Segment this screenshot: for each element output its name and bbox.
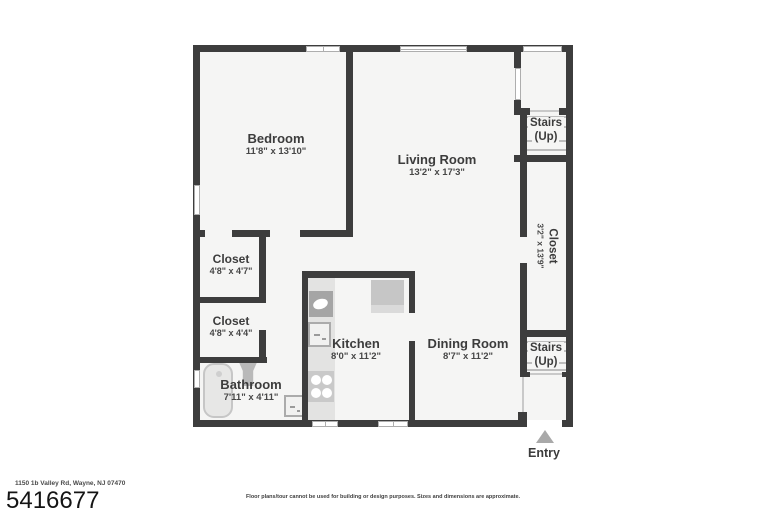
wall-right-column-lower [520, 263, 527, 372]
room-name: Closet [210, 314, 253, 328]
floor-plan: Bedroom 11'8" x 13'10" Living Room 13'2"… [0, 0, 768, 512]
room-name: Stairs [528, 342, 564, 356]
window-bedroom-top [306, 46, 340, 52]
room-label-closet-right: Closet 3'2" x 13'9" [536, 223, 559, 268]
fridge [371, 280, 404, 313]
room-dims: 11'8" x 13'10" [246, 146, 307, 157]
window-vestibule-top [523, 46, 562, 52]
wall-stairs-top-bottom [514, 155, 573, 162]
window-living-top [400, 46, 467, 52]
room-label-stairs-bottom: Stairs (Up) [528, 342, 564, 369]
room-dims: 3'2" x 13'9" [536, 223, 546, 268]
entry-arrow-icon [536, 430, 554, 443]
entry-opening [527, 420, 562, 427]
wall-kitchen-right-upper [409, 271, 415, 313]
room-label-closet-lower: Closet 4'8" x 4'4" [210, 314, 253, 338]
wall-vestibule-bottom [514, 108, 530, 115]
toilet [284, 395, 304, 417]
room-name: Dining Room [428, 336, 509, 351]
disclaimer-text: Floor plans/tour cannot be used for buil… [246, 494, 520, 500]
room-label-bedroom: Bedroom 11'8" x 13'10" [246, 131, 307, 157]
room-name: Bedroom [246, 131, 307, 146]
room-dims: 4'8" x 4'7" [210, 266, 253, 276]
kitchen-sink [309, 291, 333, 317]
room-label-dining: Dining Room 8'7" x 11'2" [428, 336, 509, 362]
window-kitchen-bottom [312, 421, 338, 427]
stove [308, 371, 334, 402]
wall-vestibule-bottom [559, 108, 573, 115]
entry-partition-line [522, 377, 524, 412]
room-name: Bathroom [220, 377, 281, 392]
room-name: Stairs [528, 117, 564, 131]
stairs-direction: (Up) [533, 131, 560, 145]
wall-stairs-bottom-landing [562, 372, 573, 377]
wall-kitchen-left [302, 271, 308, 420]
wall-closet-upper-right [259, 230, 266, 303]
wall-bedroom-bottom [300, 230, 353, 237]
room-name: Closet [210, 252, 253, 266]
room-dims: 4'8" x 4'4" [210, 328, 253, 338]
stair-tread [527, 369, 566, 371]
wall-bedroom-bottom [193, 230, 205, 237]
sink-basin [312, 297, 329, 311]
wall-closet-right-bottom [520, 330, 573, 337]
wall-bedroom-living [346, 45, 353, 237]
stairs-direction: (Up) [533, 356, 560, 370]
entry-label: Entry [528, 446, 560, 460]
room-dims: 7'11" x 4'11" [220, 392, 281, 403]
window-bathroom-left [194, 370, 200, 388]
room-dims: 8'7" x 11'2" [428, 351, 509, 362]
wall-vestibule-left [514, 52, 521, 68]
room-name: Closet [546, 223, 559, 268]
stair-landing-line [530, 373, 562, 375]
room-label-living: Living Room 13'2" x 17'3" [398, 152, 477, 178]
window-dining-bottom [378, 421, 408, 427]
wall-kitchen-top [302, 271, 415, 278]
listing-number: 5416677 [6, 487, 99, 515]
wall-entry-corner [518, 412, 527, 421]
room-label-kitchen: Kitchen 8'0" x 11'2" [331, 336, 381, 362]
wall-outer-top [193, 45, 573, 52]
room-label-bathroom: Bathroom 7'11" x 4'11" [220, 377, 281, 403]
property-address: 1150 1b Valley Rd, Wayne, NJ 07470 [15, 480, 125, 487]
wall-kitchen-right-lower [409, 341, 415, 420]
room-label-closet-upper: Closet 4'8" x 4'7" [210, 252, 253, 276]
stair-tread [527, 149, 566, 151]
stair-landing-line [530, 110, 559, 112]
window-vestibule-left [515, 68, 521, 100]
room-label-stairs-top: Stairs (Up) [528, 117, 564, 144]
window-bedroom-left [194, 185, 200, 215]
wall-right-column-upper [520, 108, 527, 237]
wall-closet-upper-bottom [193, 297, 266, 303]
wall-stairs-bottom-landing [520, 372, 530, 377]
room-dims: 13'2" x 17'3" [398, 167, 477, 178]
room-name: Living Room [398, 152, 477, 167]
wall-bathroom-top [193, 357, 267, 363]
room-dims: 8'0" x 11'2" [331, 351, 381, 362]
room-name: Kitchen [331, 336, 381, 351]
dishwasher [308, 322, 331, 347]
wall-outer-right [566, 45, 573, 427]
